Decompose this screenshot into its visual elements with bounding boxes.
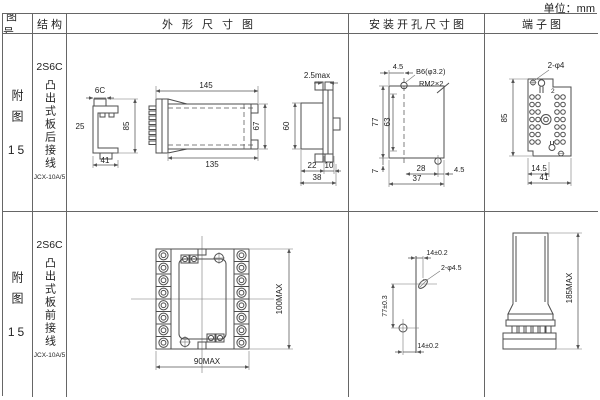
dim-145: 145: [199, 81, 213, 90]
bracket-profile-view: 6C 25 41 85: [76, 86, 138, 168]
dim-77-03: 77±0.3: [382, 295, 389, 316]
structure-code: JCX-10A/5: [34, 174, 65, 181]
structure-model: 2S6C: [36, 61, 62, 73]
terminal-corner-num: 2: [551, 88, 555, 95]
structure-desc: 凸出式板后接线: [42, 79, 58, 170]
row1-outline-drawing: 6C 25 41 85: [67, 34, 348, 211]
dim-2-5max: 2.5max: [304, 71, 330, 80]
dim-25: 25: [76, 122, 85, 131]
row2-structure: 2S6C 凸出式板前接线 JCX-10A/5: [33, 212, 67, 397]
relay-rear-view: 2.5max 60 22 10 38: [282, 71, 341, 186]
panel-cutout-view: 4.5 B6(φ3.2) RM2×2 77 63 7 28 37 4.5: [371, 62, 464, 187]
dim-85-terminal: 85: [500, 113, 509, 122]
row1-install-cell: 4.5 B6(φ3.2) RM2×2 77 63 7 28 37 4.5: [349, 34, 485, 212]
dim-2phi4: 2-φ4: [548, 61, 565, 70]
dim-6c: 6C: [95, 86, 105, 95]
header-fig-no: 图号: [3, 14, 33, 34]
row1-structure: 2S6C 凸出式板后接线 JCX-10A/5: [33, 34, 67, 212]
fig-num: 15: [8, 143, 27, 157]
label-rm2: RM2×2: [419, 79, 443, 88]
dim-90max: 90MAX: [194, 357, 221, 366]
dim-100max: 100MAX: [275, 283, 284, 314]
row1-terminal-cell: 2 2-φ4 85 14.5 41: [485, 34, 598, 212]
terminal-block-rear-view: 2 2-φ4 85 14.5 41: [500, 61, 571, 186]
row1-fig-no: 附图 15: [3, 34, 33, 212]
dim-4-5-right: 4.5: [454, 165, 464, 174]
label-b6: B6(φ3.2): [416, 67, 446, 76]
fig-num: 15: [8, 325, 27, 339]
row2-fig-no: 附图 15: [3, 212, 33, 397]
header-install: 安装开孔尺寸图: [349, 14, 485, 34]
dim-37: 37: [413, 174, 422, 183]
dim-135: 135: [205, 160, 219, 169]
dim-7: 7: [371, 168, 380, 173]
dim-10: 10: [325, 161, 334, 170]
dim-85: 85: [122, 121, 131, 130]
structure-model: 2S6C: [36, 239, 62, 251]
row1-outline-cell: 6C 25 41 85: [67, 34, 349, 212]
dim-4-5-top: 4.5: [393, 62, 403, 71]
row2-outline-drawing: 100MAX 90MAX: [67, 212, 348, 396]
structure-code: JCX-10A/5: [34, 352, 65, 359]
row2-terminal-drawing: 185MAX: [485, 212, 597, 396]
row2-outline-cell: 100MAX 90MAX: [67, 212, 349, 397]
front-mount-holes-view: 14±0.2 2-φ4.5 77±0.3 14±0.2: [382, 250, 462, 355]
dim-60: 60: [282, 121, 291, 130]
dim-28: 28: [417, 164, 426, 173]
row2-install-cell: 14±0.2 2-φ4.5 77±0.3 14±0.2: [349, 212, 485, 397]
row1-install-drawing: 4.5 B6(φ3.2) RM2×2 77 63 7 28 37 4.5: [349, 34, 484, 211]
header-structure: 结构: [33, 14, 67, 34]
relay-on-socket-side-view: 185MAX: [503, 233, 582, 349]
dim-41: 41: [101, 156, 110, 165]
relay-side-view: 145 135 67: [149, 81, 268, 169]
header-outline: 外形尺寸图: [67, 14, 349, 34]
dim-38: 38: [313, 173, 322, 182]
dim-67: 67: [252, 121, 261, 130]
dim-41-terminal: 41: [540, 173, 549, 182]
dim-185max: 185MAX: [565, 272, 574, 303]
fig-label: 附图: [9, 89, 26, 131]
structure-desc: 凸出式板前接线: [42, 257, 58, 348]
label-2phi45: 2-φ4.5: [441, 265, 462, 272]
row2-install-drawing: 14±0.2 2-φ4.5 77±0.3 14±0.2: [349, 212, 484, 396]
dim-14-5: 14.5: [531, 164, 547, 173]
dim-63: 63: [383, 117, 392, 126]
dim-77: 77: [371, 117, 380, 126]
dimension-sheet-table: 图号 结构 外形尺寸图 安装开孔尺寸图 端子图 附图 15 2S6C 凸出式板后…: [2, 13, 597, 396]
socket-front-view: 100MAX 90MAX: [131, 236, 293, 373]
fig-label: 附图: [9, 271, 26, 313]
row2-terminal-cell: 185MAX: [485, 212, 598, 397]
row1-terminal-drawing: 2 2-φ4 85 14.5 41: [485, 34, 597, 211]
dim-14-bottom: 14±0.2: [417, 343, 438, 350]
header-terminal: 端子图: [485, 14, 598, 34]
dim-22: 22: [308, 161, 317, 170]
dim-14-top: 14±0.2: [426, 250, 447, 257]
